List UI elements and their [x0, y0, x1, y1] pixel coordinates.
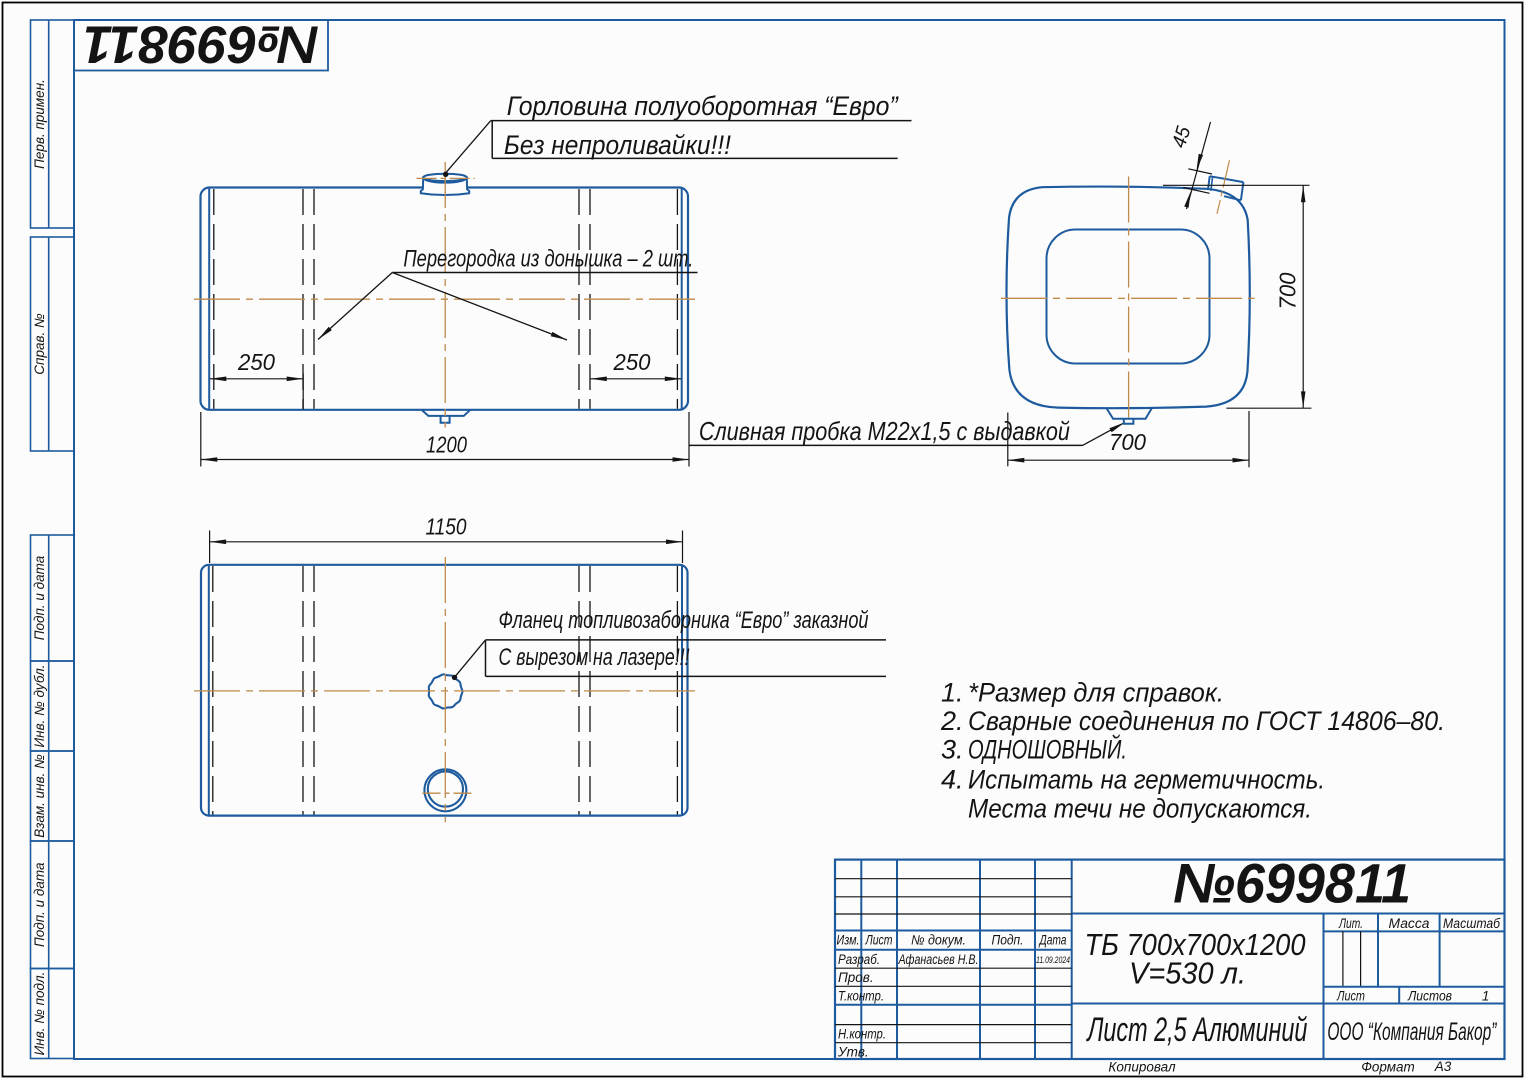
svg-text:Пров.: Пров.: [838, 970, 874, 985]
svg-text:Места течи не допускаются.: Места течи не допускаются.: [968, 794, 1312, 824]
svg-text:Формат: Формат: [1361, 1060, 1415, 1075]
svg-text:Листов: Листов: [1407, 989, 1452, 1004]
svg-text:Разраб.: Разраб.: [838, 952, 880, 967]
svg-text:Инв. № подл.: Инв. № подл.: [32, 972, 47, 1056]
svg-text:700: 700: [1275, 272, 1301, 309]
svg-text:Лист: Лист: [1336, 989, 1365, 1004]
svg-text:1: 1: [1482, 989, 1490, 1004]
svg-text:Подп. и дата: Подп. и дата: [32, 862, 47, 947]
svg-text:V=530 л.: V=530 л.: [1129, 955, 1246, 990]
svg-text:С вырезом на лазере!!!: С вырезом на лазере!!!: [499, 644, 690, 671]
svg-text:Взам. инв. №: Взам. инв. №: [32, 754, 47, 838]
svg-text:Копировал: Копировал: [1108, 1060, 1176, 1075]
svg-text:*Размер для справок.: *Размер для справок.: [968, 678, 1224, 708]
svg-text:Справ. №: Справ. №: [32, 313, 47, 375]
svg-text:Фланец топливозаборника “Евро”: Фланец топливозаборника “Евро” заказной: [499, 607, 869, 634]
svg-text:ОДНОШОВНЫЙ.: ОДНОШОВНЫЙ.: [968, 733, 1127, 765]
svg-text:Инв. № дубл.: Инв. № дубл.: [32, 664, 47, 747]
svg-text:1200: 1200: [426, 431, 467, 457]
svg-text:1.: 1.: [941, 678, 964, 708]
svg-text:Н.контр.: Н.контр.: [838, 1027, 886, 1042]
svg-text:А3: А3: [1434, 1059, 1452, 1074]
svg-text:Сварные соединения по ГОСТ 148: Сварные соединения по ГОСТ 14806–80.: [968, 706, 1445, 736]
svg-text:250: 250: [613, 349, 651, 375]
svg-text:Масса: Масса: [1389, 916, 1430, 931]
svg-text:Т.контр.: Т.контр.: [838, 989, 884, 1004]
svg-text:Дата: Дата: [1038, 933, 1067, 948]
svg-text:250: 250: [237, 349, 275, 375]
svg-text:Масштаб: Масштаб: [1443, 916, 1500, 931]
svg-text:11.09.2024: 11.09.2024: [1036, 955, 1070, 966]
svg-text:Утв.: Утв.: [837, 1045, 869, 1060]
svg-text:ООО “Компания Бакор”: ООО “Компания Бакор”: [1327, 1018, 1497, 1046]
svg-text:Без непроливайки!!!: Без непроливайки!!!: [504, 130, 731, 160]
svg-text:4.: 4.: [941, 765, 964, 795]
svg-text:Горловина полуоборотная “Евро”: Горловина полуоборотная “Евро”: [507, 91, 899, 121]
svg-text:№699811: №699811: [1173, 852, 1411, 915]
svg-text:1150: 1150: [426, 513, 467, 539]
svg-text:№ докум.: № докум.: [911, 933, 966, 948]
svg-text:Лист 2,5 Алюминий: Лист 2,5 Алюминий: [1086, 1011, 1307, 1049]
svg-text:Перв. примен.: Перв. примен.: [32, 79, 47, 169]
svg-text:№699811: №699811: [83, 15, 319, 74]
svg-text:Подп. и дата: Подп. и дата: [32, 555, 47, 640]
svg-text:Лит.: Лит.: [1338, 916, 1363, 931]
svg-text:Лист: Лист: [865, 933, 893, 948]
svg-text:2.: 2.: [940, 706, 964, 736]
svg-text:Афанасьев Н.В.: Афанасьев Н.В.: [898, 952, 979, 967]
svg-text:Перегородка из донышка – 2 шт.: Перегородка из донышка – 2 шт.: [403, 246, 693, 273]
svg-text:Испытать на герметичность.: Испытать на герметичность.: [968, 765, 1325, 795]
svg-text:Изм.: Изм.: [837, 933, 860, 948]
svg-text:Подп.: Подп.: [992, 933, 1024, 948]
svg-text:3.: 3.: [941, 735, 964, 765]
svg-text:Сливная пробка М22х1,5 с выдав: Сливная пробка М22х1,5 с выдавкой: [699, 416, 1070, 446]
svg-text:700: 700: [1109, 429, 1146, 455]
